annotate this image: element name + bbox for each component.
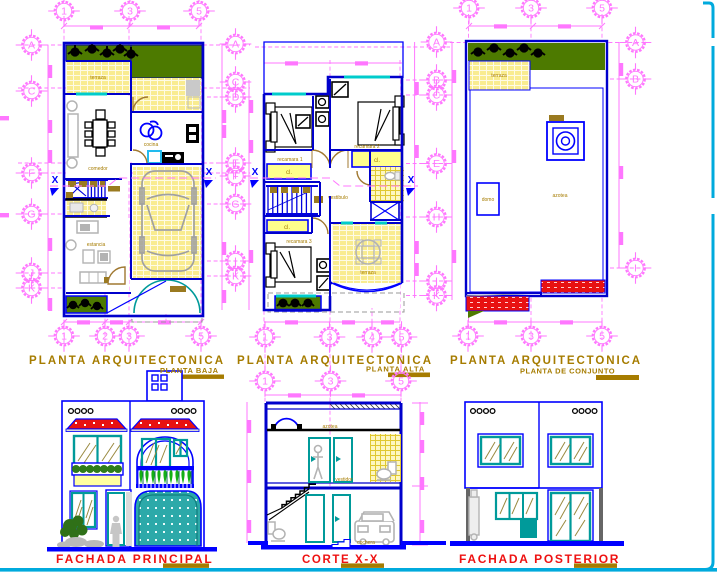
svg-text:3: 3 [528,3,534,15]
svg-text:terraza: terraza [360,270,376,276]
svg-text:PLANTA ARQUITECTONICA: PLANTA ARQUITECTONICA [450,355,642,367]
svg-text:E: E [433,158,440,170]
svg-text:A: A [232,39,239,51]
svg-text:PLANTA BAJA: PLANTA BAJA [160,366,219,375]
svg-text:vestibulo: vestibulo [328,195,348,201]
svg-text:cocina: cocina [144,142,159,148]
svg-text:5: 5 [599,3,605,15]
svg-text:comedor: comedor [88,166,108,172]
svg-text:1: 1 [466,3,472,15]
svg-text:X: X [252,167,259,178]
svg-text:G: G [231,199,239,211]
svg-text:5: 5 [399,332,405,344]
svg-text:G: G [27,209,35,221]
svg-text:cl.: cl. [374,158,380,164]
svg-text:azotea: azotea [322,424,337,430]
svg-text:terraza: terraza [90,75,106,81]
svg-text:recamara 1: recamara 1 [277,157,303,163]
svg-text:1: 1 [465,331,471,343]
svg-text:1: 1 [61,6,67,18]
svg-text:3: 3 [528,331,534,343]
svg-text:cl.: cl. [286,170,292,176]
svg-text:B: B [632,74,639,86]
svg-text:X: X [206,167,213,178]
svg-text:I: I [634,263,637,275]
svg-text:5: 5 [198,331,204,343]
svg-text:cl.: cl. [284,225,290,231]
svg-text:C: C [433,90,441,102]
svg-text:F: F [232,171,238,183]
svg-text:estancia: estancia [87,242,106,248]
svg-text:A: A [632,37,639,49]
svg-text:K: K [232,271,239,283]
svg-text:X: X [52,175,59,186]
svg-text:A: A [433,37,440,49]
svg-text:F: F [28,168,34,180]
svg-text:K: K [28,283,35,295]
svg-text:A: A [28,40,35,52]
svg-text:terraza: terraza [491,73,507,79]
svg-text:1: 1 [262,376,268,388]
svg-text:C: C [28,86,36,98]
svg-text:recamara 3: recamara 3 [286,239,312,245]
svg-text:3: 3 [328,376,334,388]
svg-text:1: 1 [61,331,67,343]
svg-text:D: D [232,92,240,104]
svg-text:3: 3 [126,331,132,343]
svg-text:5: 5 [599,331,605,343]
svg-text:PLANTA ALTA: PLANTA ALTA [366,365,425,374]
svg-text:domo: domo [482,197,495,203]
svg-text:5: 5 [196,6,202,18]
svg-text:3: 3 [127,6,133,18]
svg-text:vestidor: vestidor [335,477,353,483]
svg-text:5: 5 [398,376,404,388]
svg-text:2: 2 [102,331,108,343]
svg-text:X: X [408,175,415,186]
svg-text:PLANTA DE CONJUNTO: PLANTA DE CONJUNTO [520,367,615,376]
svg-text:azotea: azotea [552,193,567,199]
svg-text:4: 4 [369,332,375,344]
svg-text:H: H [433,212,441,224]
svg-text:K: K [433,290,440,302]
